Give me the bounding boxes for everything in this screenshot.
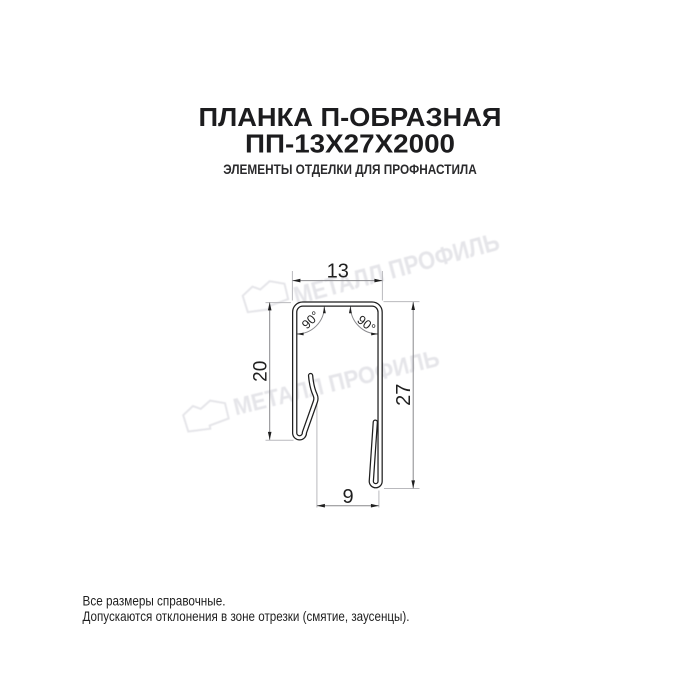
svg-text:Все размеры справочные.: Все размеры справочные. bbox=[83, 592, 226, 608]
svg-text:9: 9 bbox=[342, 486, 353, 508]
svg-text:ПП-13Х27Х2000: ПП-13Х27Х2000 bbox=[245, 130, 455, 158]
svg-text:20: 20 bbox=[251, 361, 272, 382]
svg-text:ПЛАНКА П-ОБРАЗНАЯ: ПЛАНКА П-ОБРАЗНАЯ bbox=[199, 104, 502, 132]
svg-text:13: 13 bbox=[327, 261, 349, 283]
svg-text:ЭЛЕМЕНТЫ ОТДЕЛКИ ДЛЯ ПРОФНАСТИ: ЭЛЕМЕНТЫ ОТДЕЛКИ ДЛЯ ПРОФНАСТИЛА bbox=[223, 162, 477, 177]
svg-text:27: 27 bbox=[393, 384, 415, 406]
svg-text:Допускаются отклонения в зоне: Допускаются отклонения в зоне отрезки (с… bbox=[83, 608, 410, 624]
